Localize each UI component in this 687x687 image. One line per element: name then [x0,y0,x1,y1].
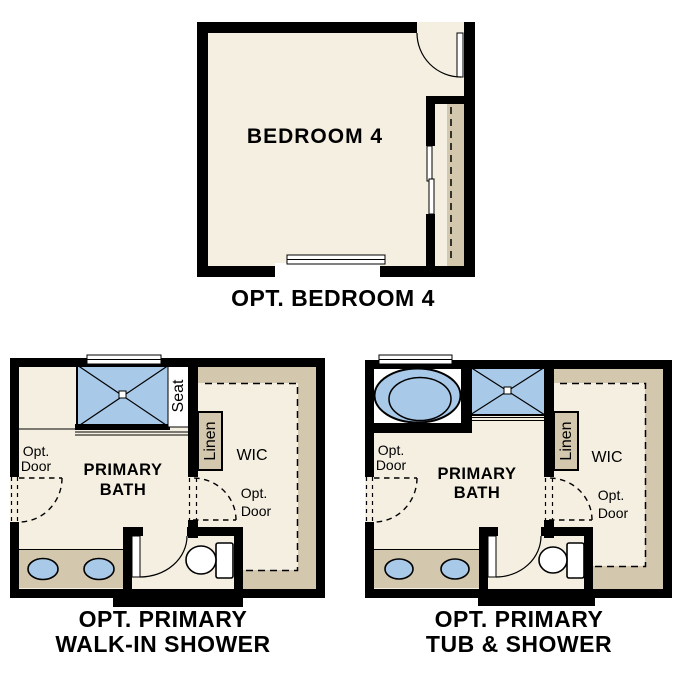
room-label-bedroom4: BEDROOM 4 [247,125,383,148]
primary-bath-label: BATH [100,481,147,499]
plan-opt-bedroom4: BEDROOM 4 OPT. BEDROOM 4 [197,22,475,311]
window-sill [275,263,380,277]
sink [441,559,469,579]
caption-tub-shower: OPT. PRIMARY [435,606,604,632]
floorplan-page: BEDROOM 4 OPT. BEDROOM 4 [0,0,687,687]
linen-label: Linen [202,421,219,460]
toilet-tank [216,543,233,578]
floorplan-image: BEDROOM 4 OPT. BEDROOM 4 [0,0,687,687]
wic-label: WIC [591,449,622,466]
sink [28,559,58,580]
caption-walk-in-shower: WALK-IN SHOWER [55,631,270,657]
opt-door-label: Opt. [241,485,267,501]
seat-label: Seat [170,379,187,412]
opt-door-label: Door [21,458,52,474]
opt-door-label: Door [376,457,407,473]
caption-tub-shower: TUB & SHOWER [426,631,612,657]
wic-label: WIC [236,447,267,464]
closet-sliding-door [427,146,432,181]
tub [375,369,461,423]
door-leaf [457,33,463,77]
primary-bath-label: PRIMARY [84,461,163,479]
shower-drain [119,391,126,398]
sink [385,559,413,579]
opt-door-label: Door [241,503,272,519]
primary-bath-label: BATH [454,484,501,502]
shower-drain [504,387,511,394]
opt-door-label: Door [598,505,629,521]
toilet-tank [567,543,584,578]
closet-shelf [447,104,464,266]
door-leaf [488,536,496,577]
closet-sliding-door [429,179,434,214]
caption-opt-bedroom4: OPT. BEDROOM 4 [231,285,435,311]
door-leaf [132,536,140,577]
opt-door-label: Opt. [378,442,404,458]
toilet-bowl [539,547,567,573]
sink [84,559,114,580]
caption-walk-in-shower: OPT. PRIMARY [79,606,248,632]
shower-curb-wall [75,424,170,430]
opt-door-label: Opt. [598,487,624,503]
opt-door-label: Opt. [23,443,49,459]
primary-bath-label: PRIMARY [438,465,517,483]
toilet-bowl [186,546,216,574]
linen-label: Linen [558,421,575,460]
